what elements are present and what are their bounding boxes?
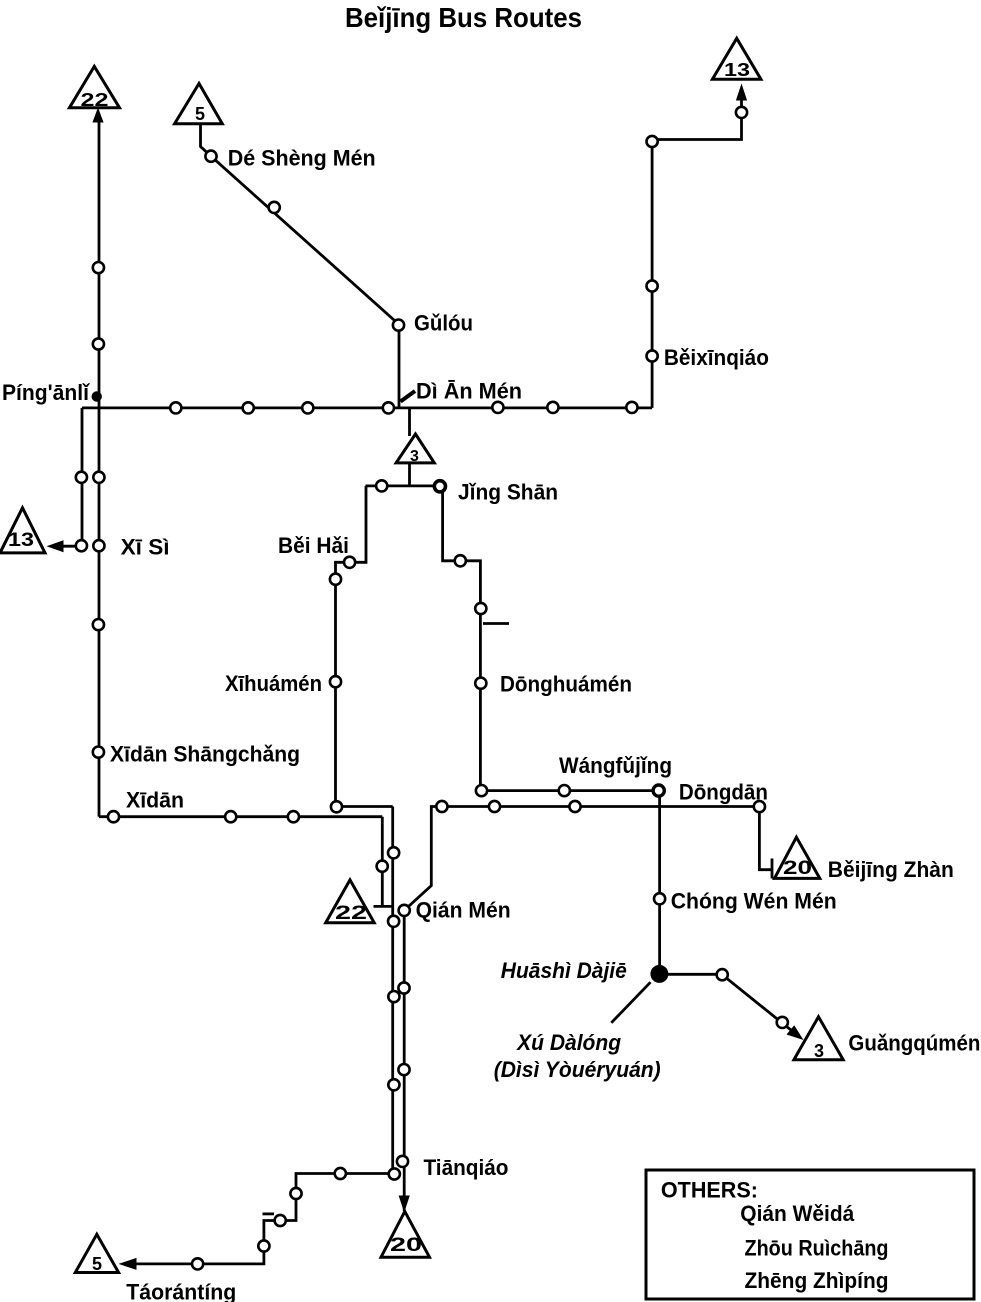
svg-text:Qián Mén: Qián Mén — [416, 898, 511, 923]
svg-text:Jǐng Shān: Jǐng Shān — [458, 479, 558, 504]
svg-text:Běijīng Zhàn: Běijīng Zhàn — [828, 857, 954, 882]
svg-text:Píng'ānlǐ: Píng'ānlǐ — [2, 380, 91, 405]
svg-text:5: 5 — [92, 1254, 102, 1274]
svg-text:Guǎngqúmén: Guǎngqúmén — [848, 1030, 980, 1055]
svg-text:Xīdān Shāngchǎng: Xīdān Shāngchǎng — [110, 742, 300, 767]
svg-text:Gǔlóu: Gǔlóu — [414, 311, 473, 336]
svg-text:20: 20 — [390, 1235, 422, 1256]
svg-text:Běi Hǎi: Běi Hǎi — [278, 533, 349, 558]
svg-text:Wángfǔjǐng: Wángfǔjǐng — [559, 753, 672, 778]
svg-text:Beǐjīng Bus Routes: Beǐjīng Bus Routes — [345, 2, 582, 33]
svg-text:Běixīnqiáo: Běixīnqiáo — [664, 345, 769, 370]
svg-text:Xī Sì: Xī Sì — [121, 535, 170, 560]
svg-text:OTHERS:: OTHERS: — [661, 1178, 758, 1203]
svg-text:Tiānqiáo: Tiānqiáo — [424, 1155, 509, 1180]
svg-text:Xīdān: Xīdān — [126, 788, 184, 813]
svg-text:Chóng Wén Mén: Chóng Wén Mén — [671, 889, 837, 914]
svg-text:5: 5 — [195, 104, 205, 124]
svg-text:Dì Ān Mén: Dì Ān Mén — [416, 378, 522, 403]
svg-text:(Dìsì Yòuéryuán): (Dìsì Yòuéryuán) — [494, 1057, 661, 1082]
svg-text:Xīhuámén: Xīhuámén — [225, 671, 322, 696]
svg-text:Dōngdān: Dōngdān — [679, 780, 768, 805]
svg-text:Huāshì Dàjiē: Huāshì Dàjiē — [501, 958, 627, 983]
svg-text:3: 3 — [410, 448, 419, 465]
svg-text:Zhōu Ruìchāng: Zhōu Ruìchāng — [745, 1236, 889, 1261]
svg-text:Zhēng Zhìpíng: Zhēng Zhìpíng — [745, 1268, 889, 1293]
svg-text:Xú Dàlóng: Xú Dàlóng — [515, 1030, 621, 1055]
svg-text:Dōnghuámén: Dōnghuámén — [500, 672, 632, 697]
svg-text:Dé Shèng Mén: Dé Shèng Mén — [228, 146, 376, 171]
svg-text:22: 22 — [81, 90, 109, 110]
svg-text:13: 13 — [8, 530, 34, 551]
svg-text:13: 13 — [724, 60, 750, 80]
svg-text:Táorántíng: Táorántíng — [126, 1280, 236, 1302]
svg-text:22: 22 — [335, 903, 367, 924]
svg-text:Qián Wěidá: Qián Wěidá — [740, 1201, 855, 1226]
svg-text:20: 20 — [783, 858, 812, 879]
svg-text:3: 3 — [814, 1041, 824, 1061]
